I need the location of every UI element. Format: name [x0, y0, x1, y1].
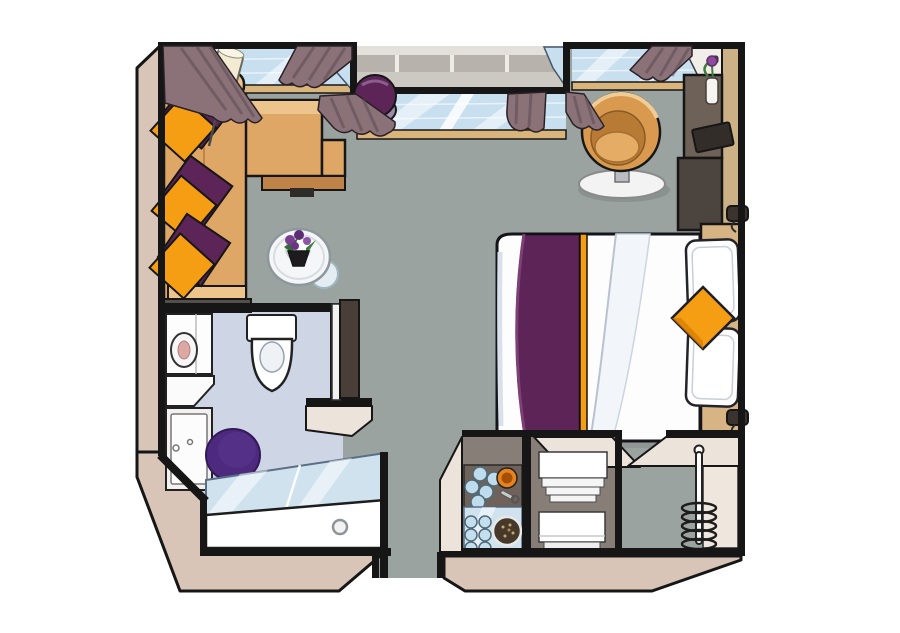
- serving-plate: [493, 517, 521, 545]
- bed-runner: [517, 234, 580, 441]
- bathroom-wall: [158, 303, 348, 312]
- tub-drain: [333, 520, 347, 534]
- curtain: [507, 92, 546, 132]
- towel-stack: [539, 512, 605, 549]
- runner-orange-trim: [580, 234, 587, 441]
- minibar-niche: [462, 437, 522, 554]
- towel-stack: [539, 452, 607, 502]
- floor-plan-canvas: [0, 0, 900, 633]
- snack-bowl: [497, 468, 517, 488]
- flower-vase: [705, 56, 719, 104]
- window-sill: [572, 82, 698, 90]
- floor-plan: [0, 0, 900, 633]
- bathroom-door: [332, 300, 359, 400]
